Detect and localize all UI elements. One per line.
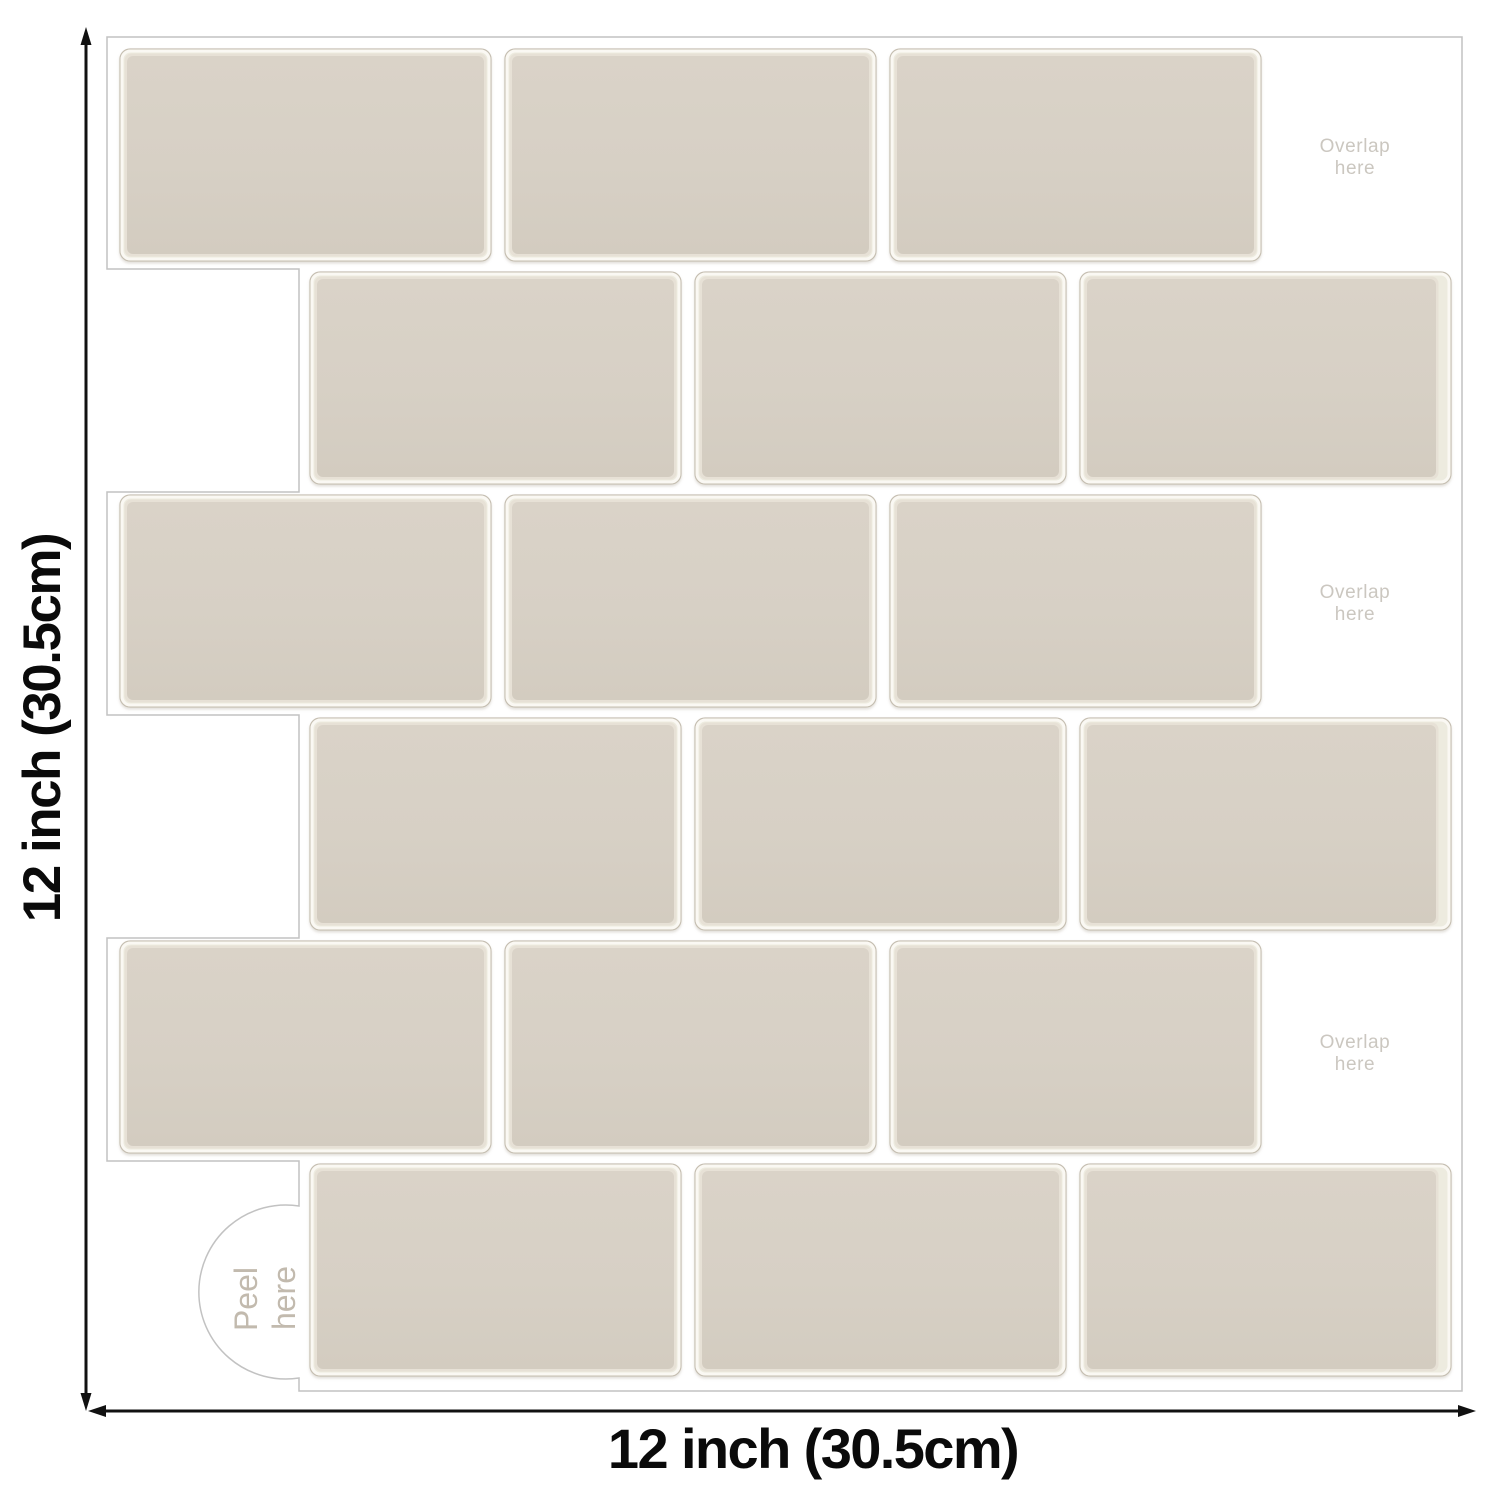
svg-text:Overlap: Overlap [1320,1032,1391,1053]
svg-text:here: here [1335,604,1375,625]
svg-text:Overlap: Overlap [1320,582,1391,603]
svg-text:Overlap: Overlap [1320,136,1391,157]
svg-text:here: here [1335,158,1375,179]
svg-text:12 inch (30.5cm): 12 inch (30.5cm) [608,1417,1018,1480]
svg-text:here: here [266,1266,302,1330]
svg-text:Peel: Peel [228,1267,264,1331]
svg-text:12 inch (30.5cm): 12 inch (30.5cm) [13,534,72,922]
svg-text:here: here [1335,1054,1375,1075]
